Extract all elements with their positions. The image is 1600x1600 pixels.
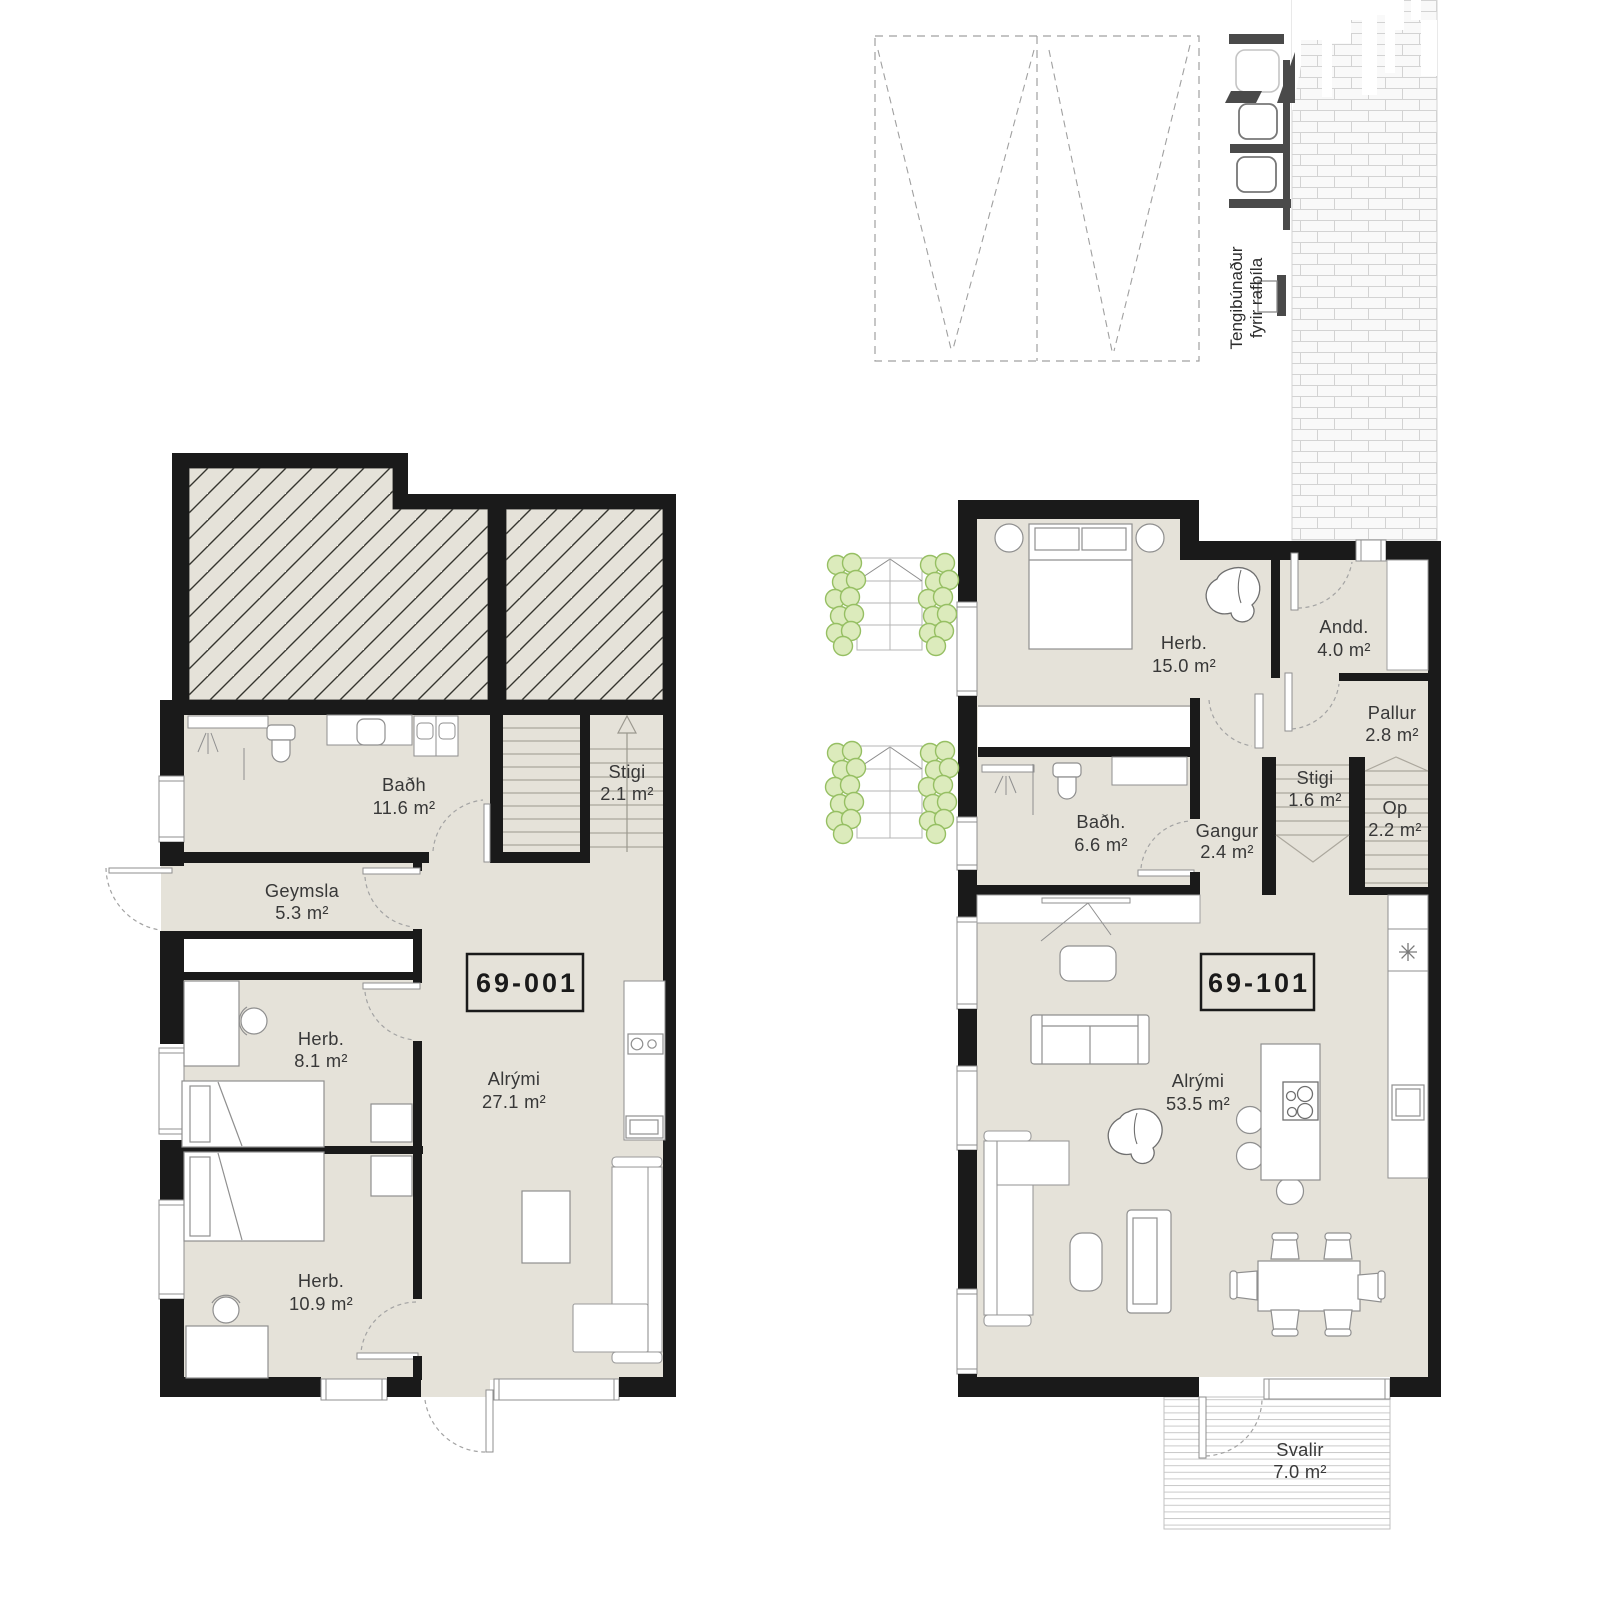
svg-text:2.1 m²: 2.1 m² — [600, 783, 654, 804]
svg-text:7.0 m²: 7.0 m² — [1273, 1461, 1327, 1482]
svg-text:Gangur: Gangur — [1196, 820, 1259, 841]
svg-text:Baðh: Baðh — [382, 774, 426, 795]
svg-text:Svalir: Svalir — [1276, 1439, 1324, 1460]
svg-text:2.8 m²: 2.8 m² — [1365, 724, 1419, 745]
svg-text:6.6 m²: 6.6 m² — [1074, 834, 1128, 855]
svg-text:Alrými: Alrými — [488, 1068, 541, 1089]
svg-text:53.5 m²: 53.5 m² — [1166, 1093, 1230, 1114]
svg-text:27.1 m²: 27.1 m² — [482, 1091, 546, 1112]
svg-text:1.6 m²: 1.6 m² — [1288, 789, 1342, 810]
svg-text:Pallur: Pallur — [1368, 702, 1417, 723]
svg-text:Tengibúnaður: Tengibúnaður — [1227, 246, 1246, 349]
svg-text:11.6 m²: 11.6 m² — [373, 797, 436, 818]
svg-text:fyrir rafbíla: fyrir rafbíla — [1247, 257, 1266, 338]
svg-text:Op: Op — [1383, 797, 1408, 818]
svg-text:2.4 m²: 2.4 m² — [1200, 841, 1254, 862]
svg-text:Herb.: Herb. — [298, 1270, 344, 1291]
svg-text:69-001: 69-001 — [476, 968, 578, 998]
svg-text:2.2 m²: 2.2 m² — [1368, 819, 1422, 840]
svg-text:10.9 m²: 10.9 m² — [289, 1293, 353, 1314]
svg-text:Stigi: Stigi — [1296, 767, 1333, 788]
svg-text:5.3 m²: 5.3 m² — [275, 902, 329, 923]
svg-text:69-101: 69-101 — [1208, 968, 1310, 998]
svg-text:Alrými: Alrými — [1172, 1070, 1225, 1091]
svg-text:Herb.: Herb. — [298, 1028, 344, 1049]
svg-text:Geymsla: Geymsla — [265, 880, 340, 901]
svg-text:8.1 m²: 8.1 m² — [294, 1050, 348, 1071]
svg-text:Baðh.: Baðh. — [1076, 811, 1125, 832]
svg-text:Stigi: Stigi — [608, 761, 645, 782]
svg-text:Herb.: Herb. — [1161, 632, 1207, 653]
svg-text:Andd.: Andd. — [1319, 616, 1368, 637]
svg-text:15.0 m²: 15.0 m² — [1152, 655, 1216, 676]
svg-text:4.0 m²: 4.0 m² — [1317, 639, 1371, 660]
